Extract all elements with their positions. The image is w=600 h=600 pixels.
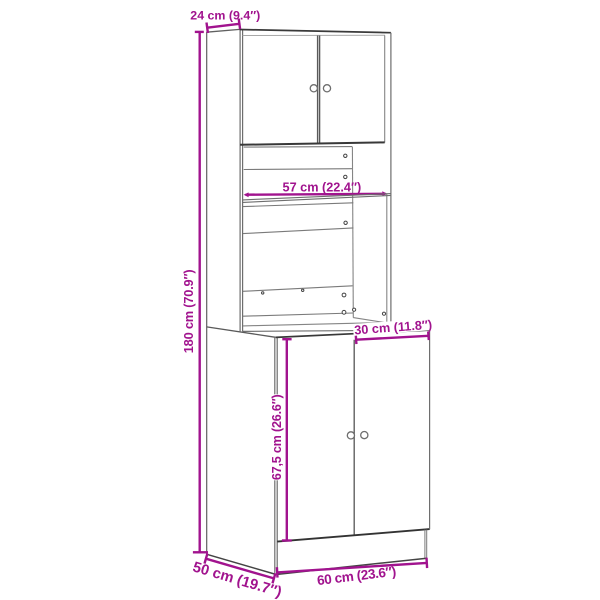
svg-text:24 cm (9.4″): 24 cm (9.4″) bbox=[190, 9, 260, 23]
svg-text:57 cm (22.4″): 57 cm (22.4″) bbox=[283, 181, 362, 195]
svg-text:67,5 cm (26.6″): 67,5 cm (26.6″) bbox=[270, 394, 284, 480]
svg-text:180 cm (70.9″): 180 cm (70.9″) bbox=[181, 270, 196, 354]
